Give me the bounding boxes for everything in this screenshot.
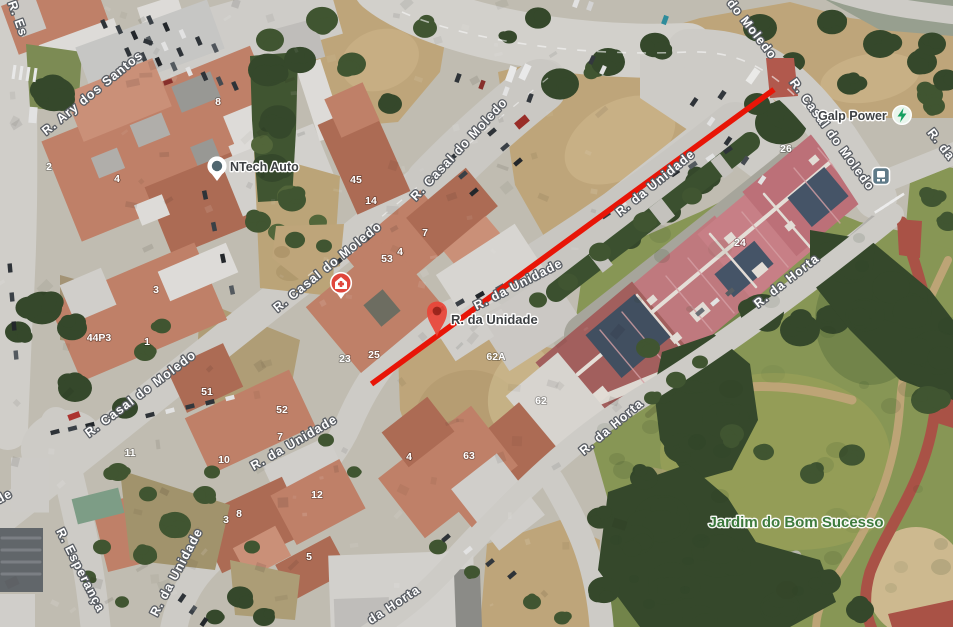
svg-text:52: 52 — [276, 404, 288, 416]
svg-text:NTech Auto: NTech Auto — [230, 160, 299, 174]
svg-text:63: 63 — [463, 450, 475, 462]
svg-text:12: 12 — [311, 489, 323, 501]
svg-text:25: 25 — [368, 349, 380, 361]
svg-text:51: 51 — [201, 386, 213, 398]
svg-text:2: 2 — [46, 161, 52, 173]
svg-text:14: 14 — [365, 195, 377, 207]
svg-text:26: 26 — [780, 143, 792, 155]
svg-text:62: 62 — [535, 395, 547, 407]
svg-text:8: 8 — [236, 508, 242, 520]
svg-text:4: 4 — [114, 173, 120, 185]
svg-text:3: 3 — [223, 514, 229, 526]
svg-text:24: 24 — [734, 237, 746, 249]
svg-text:45: 45 — [350, 174, 362, 186]
svg-text:44P3: 44P3 — [87, 332, 112, 344]
svg-text:23: 23 — [339, 353, 351, 365]
svg-text:1: 1 — [144, 336, 150, 348]
svg-text:5: 5 — [306, 551, 312, 563]
svg-text:Galp Power: Galp Power — [818, 109, 887, 123]
svg-text:4: 4 — [397, 246, 403, 258]
svg-text:4: 4 — [406, 451, 412, 463]
svg-text:R. da Unidade: R. da Unidade — [451, 312, 538, 327]
svg-text:Jardim do Bom Sucesso: Jardim do Bom Sucesso — [708, 514, 883, 531]
svg-text:3: 3 — [153, 284, 159, 296]
svg-text:7: 7 — [277, 431, 283, 443]
svg-text:8: 8 — [215, 96, 221, 108]
svg-text:53: 53 — [381, 253, 393, 265]
svg-text:7: 7 — [422, 227, 428, 239]
svg-text:11: 11 — [124, 447, 135, 459]
svg-text:10: 10 — [218, 454, 230, 466]
svg-text:62A: 62A — [486, 351, 506, 363]
